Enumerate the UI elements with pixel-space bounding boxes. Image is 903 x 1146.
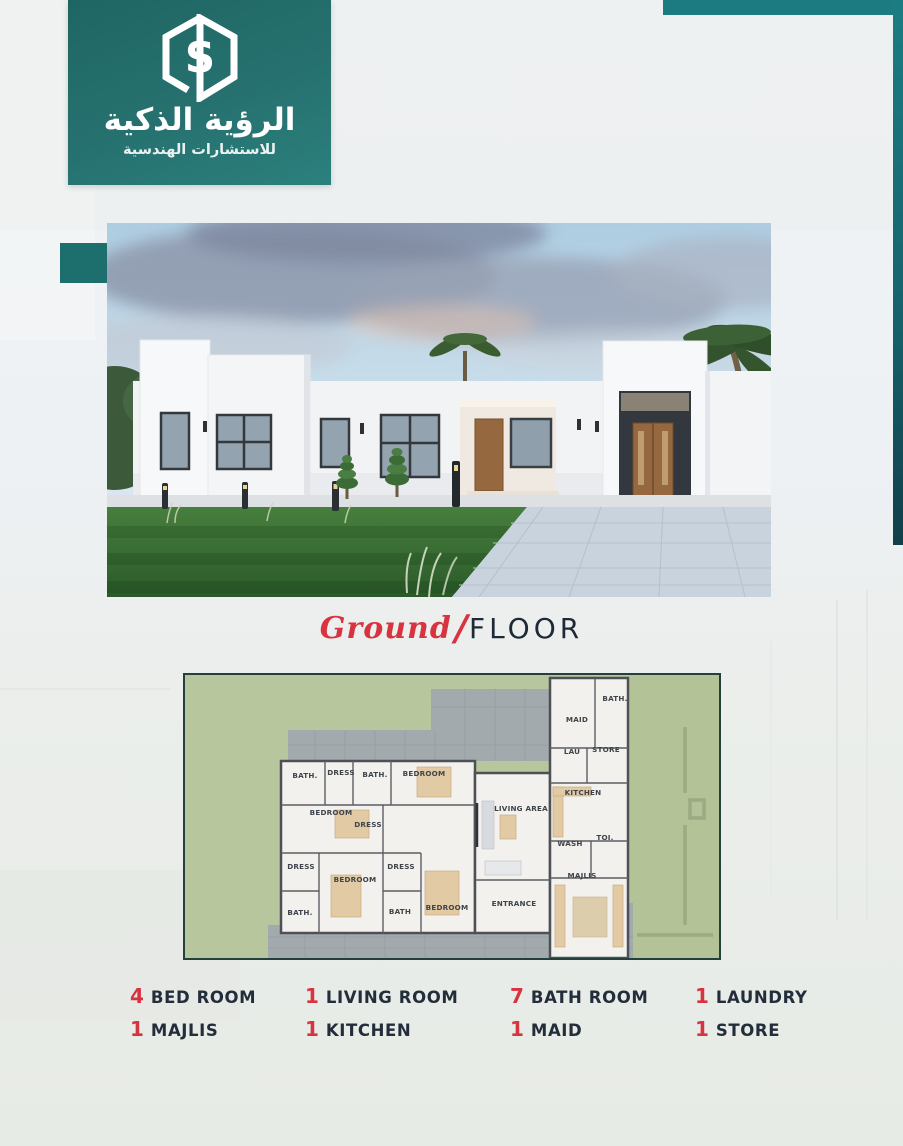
room-label: DRESS — [287, 862, 314, 871]
feature-label: KITCHEN — [326, 1021, 411, 1040]
lawn-stripes — [107, 526, 513, 593]
feature-item: 1KITCHEN — [305, 1017, 510, 1041]
room-label: BEDROOM — [403, 769, 446, 778]
room-label: LAU — [564, 747, 580, 756]
room-label: MAID — [566, 715, 588, 724]
room-label: BATH — [389, 907, 411, 916]
section-title: Ground/FLOOR — [0, 606, 903, 647]
room-label: TOI. — [596, 833, 613, 842]
teal-accent-square — [60, 243, 107, 283]
feature-label: BATH ROOM — [531, 988, 648, 1007]
feature-count: 1 — [305, 984, 319, 1008]
room-label: WASH — [557, 839, 582, 848]
room-label: ENTRANCE — [492, 899, 537, 908]
background-door-frame-line — [836, 600, 838, 920]
section-title-script: Ground — [320, 611, 452, 646]
right-teal-strip — [893, 0, 903, 545]
background-door-frame-line — [770, 640, 772, 900]
top-teal-bar — [663, 0, 903, 15]
floor-plan: BATH.DRESSBATH.BEDROOMBEDROOMDRESSDRESSB… — [183, 673, 721, 960]
feature-item: 4BED ROOM — [130, 984, 305, 1008]
room-label: BEDROOM — [310, 808, 353, 817]
feature-count: 1 — [130, 1017, 144, 1041]
logo-subtitle-arabic: للاستشارات الهندسية — [123, 142, 276, 158]
feature-item: 1MAJLIS — [130, 1017, 305, 1041]
feature-count: 1 — [695, 984, 709, 1008]
room-label: KITCHEN — [565, 788, 602, 797]
porch-wood-door — [475, 419, 503, 491]
feature-label: MAJLIS — [151, 1021, 218, 1040]
porch-window — [511, 419, 551, 467]
room-label: DRESS — [354, 820, 381, 829]
room-label: BEDROOM — [426, 903, 469, 912]
feature-count: 4 — [130, 984, 144, 1008]
room-label: BATH. — [287, 908, 312, 917]
logo-hexagon-s-icon: S — [158, 14, 242, 102]
background-faded-line — [0, 688, 170, 690]
feature-label: BED ROOM — [151, 988, 256, 1007]
section-title-slash: / — [455, 608, 468, 649]
feature-item: 1LIVING ROOM — [305, 984, 510, 1008]
feature-item: 1LAUNDRY — [695, 984, 808, 1008]
logo-title-arabic: الرؤية الذكية — [104, 104, 296, 137]
poster-page: S الرؤية الذكية للاستشارات الهندسية — [0, 0, 903, 1146]
house-render-illustration — [107, 223, 771, 597]
floor-plan-drawing: BATH.DRESSBATH.BEDROOMBEDROOMDRESSDRESSB… — [185, 675, 719, 958]
feature-label: MAID — [531, 1021, 582, 1040]
feature-count: 7 — [510, 984, 524, 1008]
svg-text:S: S — [184, 33, 214, 82]
feature-item: 7BATH ROOM — [510, 984, 695, 1008]
brand-logo-card: S الرؤية الذكية للاستشارات الهندسية — [68, 0, 331, 185]
features-list: 4BED ROOM1LIVING ROOM7BATH ROOM1LAUNDRY1… — [130, 984, 800, 1041]
room-label: BATH. — [362, 770, 387, 779]
feature-item: 1STORE — [695, 1017, 808, 1041]
room-label: STORE — [592, 745, 620, 754]
sidewalk — [107, 495, 771, 507]
feature-item: 1MAID — [510, 1017, 695, 1041]
room-label: MAJLIS — [567, 871, 596, 880]
feature-label: LAUNDRY — [716, 988, 808, 1007]
feature-count: 1 — [510, 1017, 524, 1041]
room-label: BATH. — [602, 694, 627, 703]
feature-label: LIVING ROOM — [326, 988, 458, 1007]
room-label: DRESS — [387, 862, 414, 871]
room-label: LIVING AREA — [494, 804, 548, 813]
feature-label: STORE — [716, 1021, 780, 1040]
section-title-main: FLOOR — [469, 612, 583, 645]
house-render-photo — [107, 223, 771, 597]
room-label: BEDROOM — [334, 875, 377, 884]
feature-count: 1 — [695, 1017, 709, 1041]
room-label: BATH. — [292, 771, 317, 780]
room-label: DRESS — [327, 768, 354, 777]
feature-count: 1 — [305, 1017, 319, 1041]
